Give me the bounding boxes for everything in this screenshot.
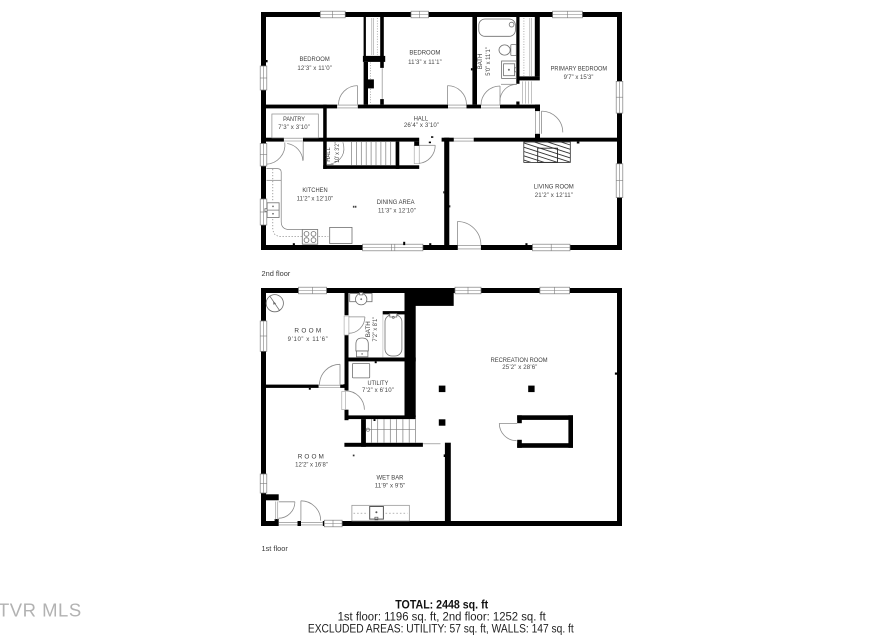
svg-text:TVR MLS: TVR MLS xyxy=(0,600,82,621)
svg-text:RECREATION ROOM: RECREATION ROOM xyxy=(491,357,548,364)
svg-text:11’2” x 12’10”: 11’2” x 12’10” xyxy=(297,195,334,202)
svg-text:BATH: BATH xyxy=(365,321,372,337)
svg-text:PANTRY: PANTRY xyxy=(283,116,305,123)
svg-text:BEDROOM: BEDROOM xyxy=(300,56,330,63)
svg-text:KITCHEN: KITCHEN xyxy=(302,187,328,194)
svg-text:25’2” x 28’6”: 25’2” x 28’6” xyxy=(502,364,537,371)
svg-text:9’7” x 15’3”: 9’7” x 15’3” xyxy=(564,74,594,81)
svg-text:DINING AREA: DINING AREA xyxy=(377,199,415,206)
svg-text:26’4” x 3’10”: 26’4” x 3’10” xyxy=(404,122,439,129)
svg-text:12’3” x 11’0”: 12’3” x 11’0” xyxy=(297,65,331,72)
svg-text:BEDROOM: BEDROOM xyxy=(409,50,440,57)
svg-text:PRIMARY BEDROOM: PRIMARY BEDROOM xyxy=(551,66,608,73)
svg-text:7’3” x 3’10”: 7’3” x 3’10” xyxy=(278,124,310,131)
svg-text:HALL: HALL xyxy=(325,147,332,162)
svg-text:2nd floor: 2nd floor xyxy=(262,269,291,278)
svg-text:7’2” x 8’1”: 7’2” x 8’1” xyxy=(372,317,379,342)
svg-text:9’10” x 11’6”: 9’10” x 11’6” xyxy=(288,336,328,343)
svg-text:12’2” x 16’8”: 12’2” x 16’8” xyxy=(295,461,328,468)
svg-text:ROOM: ROOM xyxy=(298,453,324,460)
svg-text:EXCLUDED AREAS: UTILITY: 57 sq: EXCLUDED AREAS: UTILITY: 57 sq. ft, WALL… xyxy=(308,622,574,636)
svg-text:11’9” x 9’5”: 11’9” x 9’5” xyxy=(375,482,405,489)
svg-text:WET BAR: WET BAR xyxy=(377,475,404,482)
svg-text:1st floor: 1st floor xyxy=(262,544,289,553)
svg-text:BATH: BATH xyxy=(477,53,484,69)
svg-text:LIVING ROOM: LIVING ROOM xyxy=(534,184,574,191)
svg-text:5’0” x 11’1”: 5’0” x 11’1” xyxy=(485,47,492,75)
svg-text:11’3” x 11’1”: 11’3” x 11’1” xyxy=(408,59,442,66)
svg-text:UTILITY: UTILITY xyxy=(368,380,389,387)
svg-text:7’2” x 6’10”: 7’2” x 6’10” xyxy=(362,387,394,394)
svg-text:21’2” x 12’11”: 21’2” x 12’11” xyxy=(535,192,573,199)
svg-text:11’3” x 12’10”: 11’3” x 12’10” xyxy=(378,207,416,214)
svg-text:10’ x 3’2”: 10’ x 3’2” xyxy=(334,142,341,163)
svg-text:ROOM: ROOM xyxy=(294,327,321,334)
